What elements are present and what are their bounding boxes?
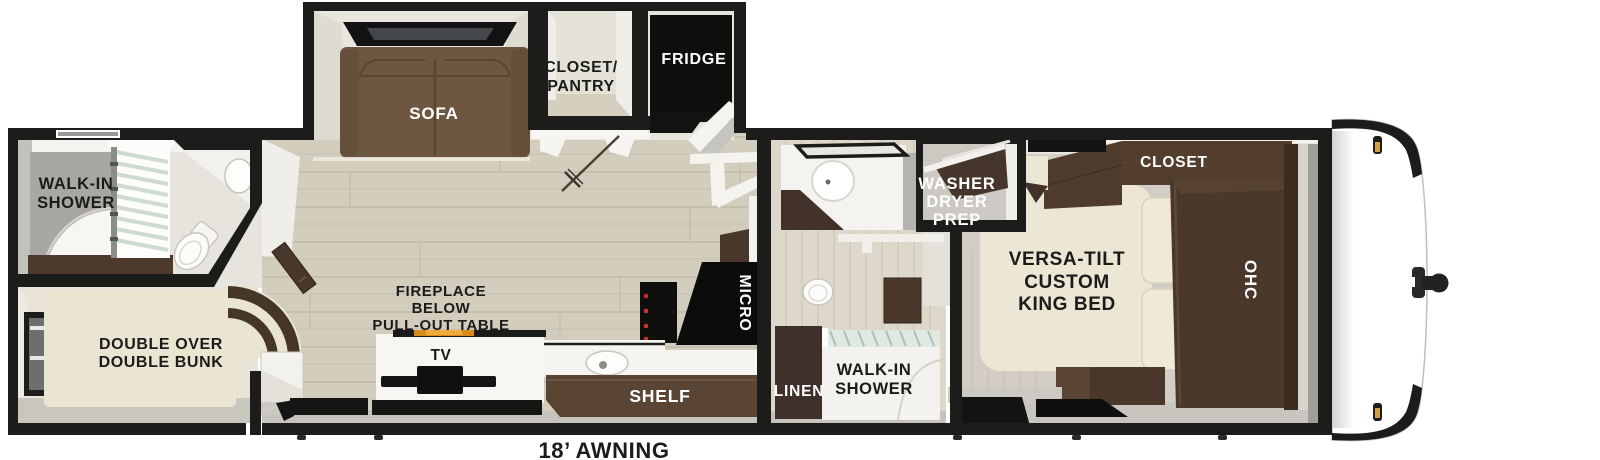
svg-text:FIREPLACE: FIREPLACE: [396, 283, 486, 300]
svg-text:DOUBLE BUNK: DOUBLE BUNK: [99, 354, 224, 371]
svg-text:PULL-OUT TABLE: PULL-OUT TABLE: [372, 317, 509, 334]
svg-text:SOFA: SOFA: [409, 104, 459, 123]
svg-text:WALK-IN: WALK-IN: [837, 361, 912, 379]
svg-text:PANTRY: PANTRY: [547, 78, 615, 95]
svg-text:WASHER: WASHER: [918, 175, 995, 193]
svg-text:BELOW: BELOW: [412, 300, 471, 317]
svg-text:SHOWER: SHOWER: [37, 194, 115, 212]
svg-text:CUSTOM: CUSTOM: [1024, 272, 1110, 293]
svg-text:18’ AWNING: 18’ AWNING: [538, 438, 669, 460]
svg-text:OHC: OHC: [1241, 260, 1260, 300]
svg-text:FRIDGE: FRIDGE: [661, 51, 726, 68]
svg-text:DOUBLE OVER: DOUBLE OVER: [99, 336, 223, 353]
svg-text:VERSA-TILT: VERSA-TILT: [1009, 249, 1125, 270]
svg-text:PREP: PREP: [933, 211, 981, 229]
svg-text:MICRO: MICRO: [736, 274, 753, 331]
svg-text:WALK-IN: WALK-IN: [39, 175, 114, 193]
svg-text:KING BED: KING BED: [1018, 294, 1116, 315]
svg-text:SHOWER: SHOWER: [835, 380, 913, 398]
svg-text:DRYER: DRYER: [926, 193, 987, 211]
svg-text:LINEN: LINEN: [774, 383, 825, 400]
svg-text:CLOSET/: CLOSET/: [544, 59, 618, 76]
svg-text:CLOSET: CLOSET: [1140, 154, 1208, 171]
svg-text:SHELF: SHELF: [629, 386, 690, 406]
svg-text:TV: TV: [430, 347, 451, 364]
